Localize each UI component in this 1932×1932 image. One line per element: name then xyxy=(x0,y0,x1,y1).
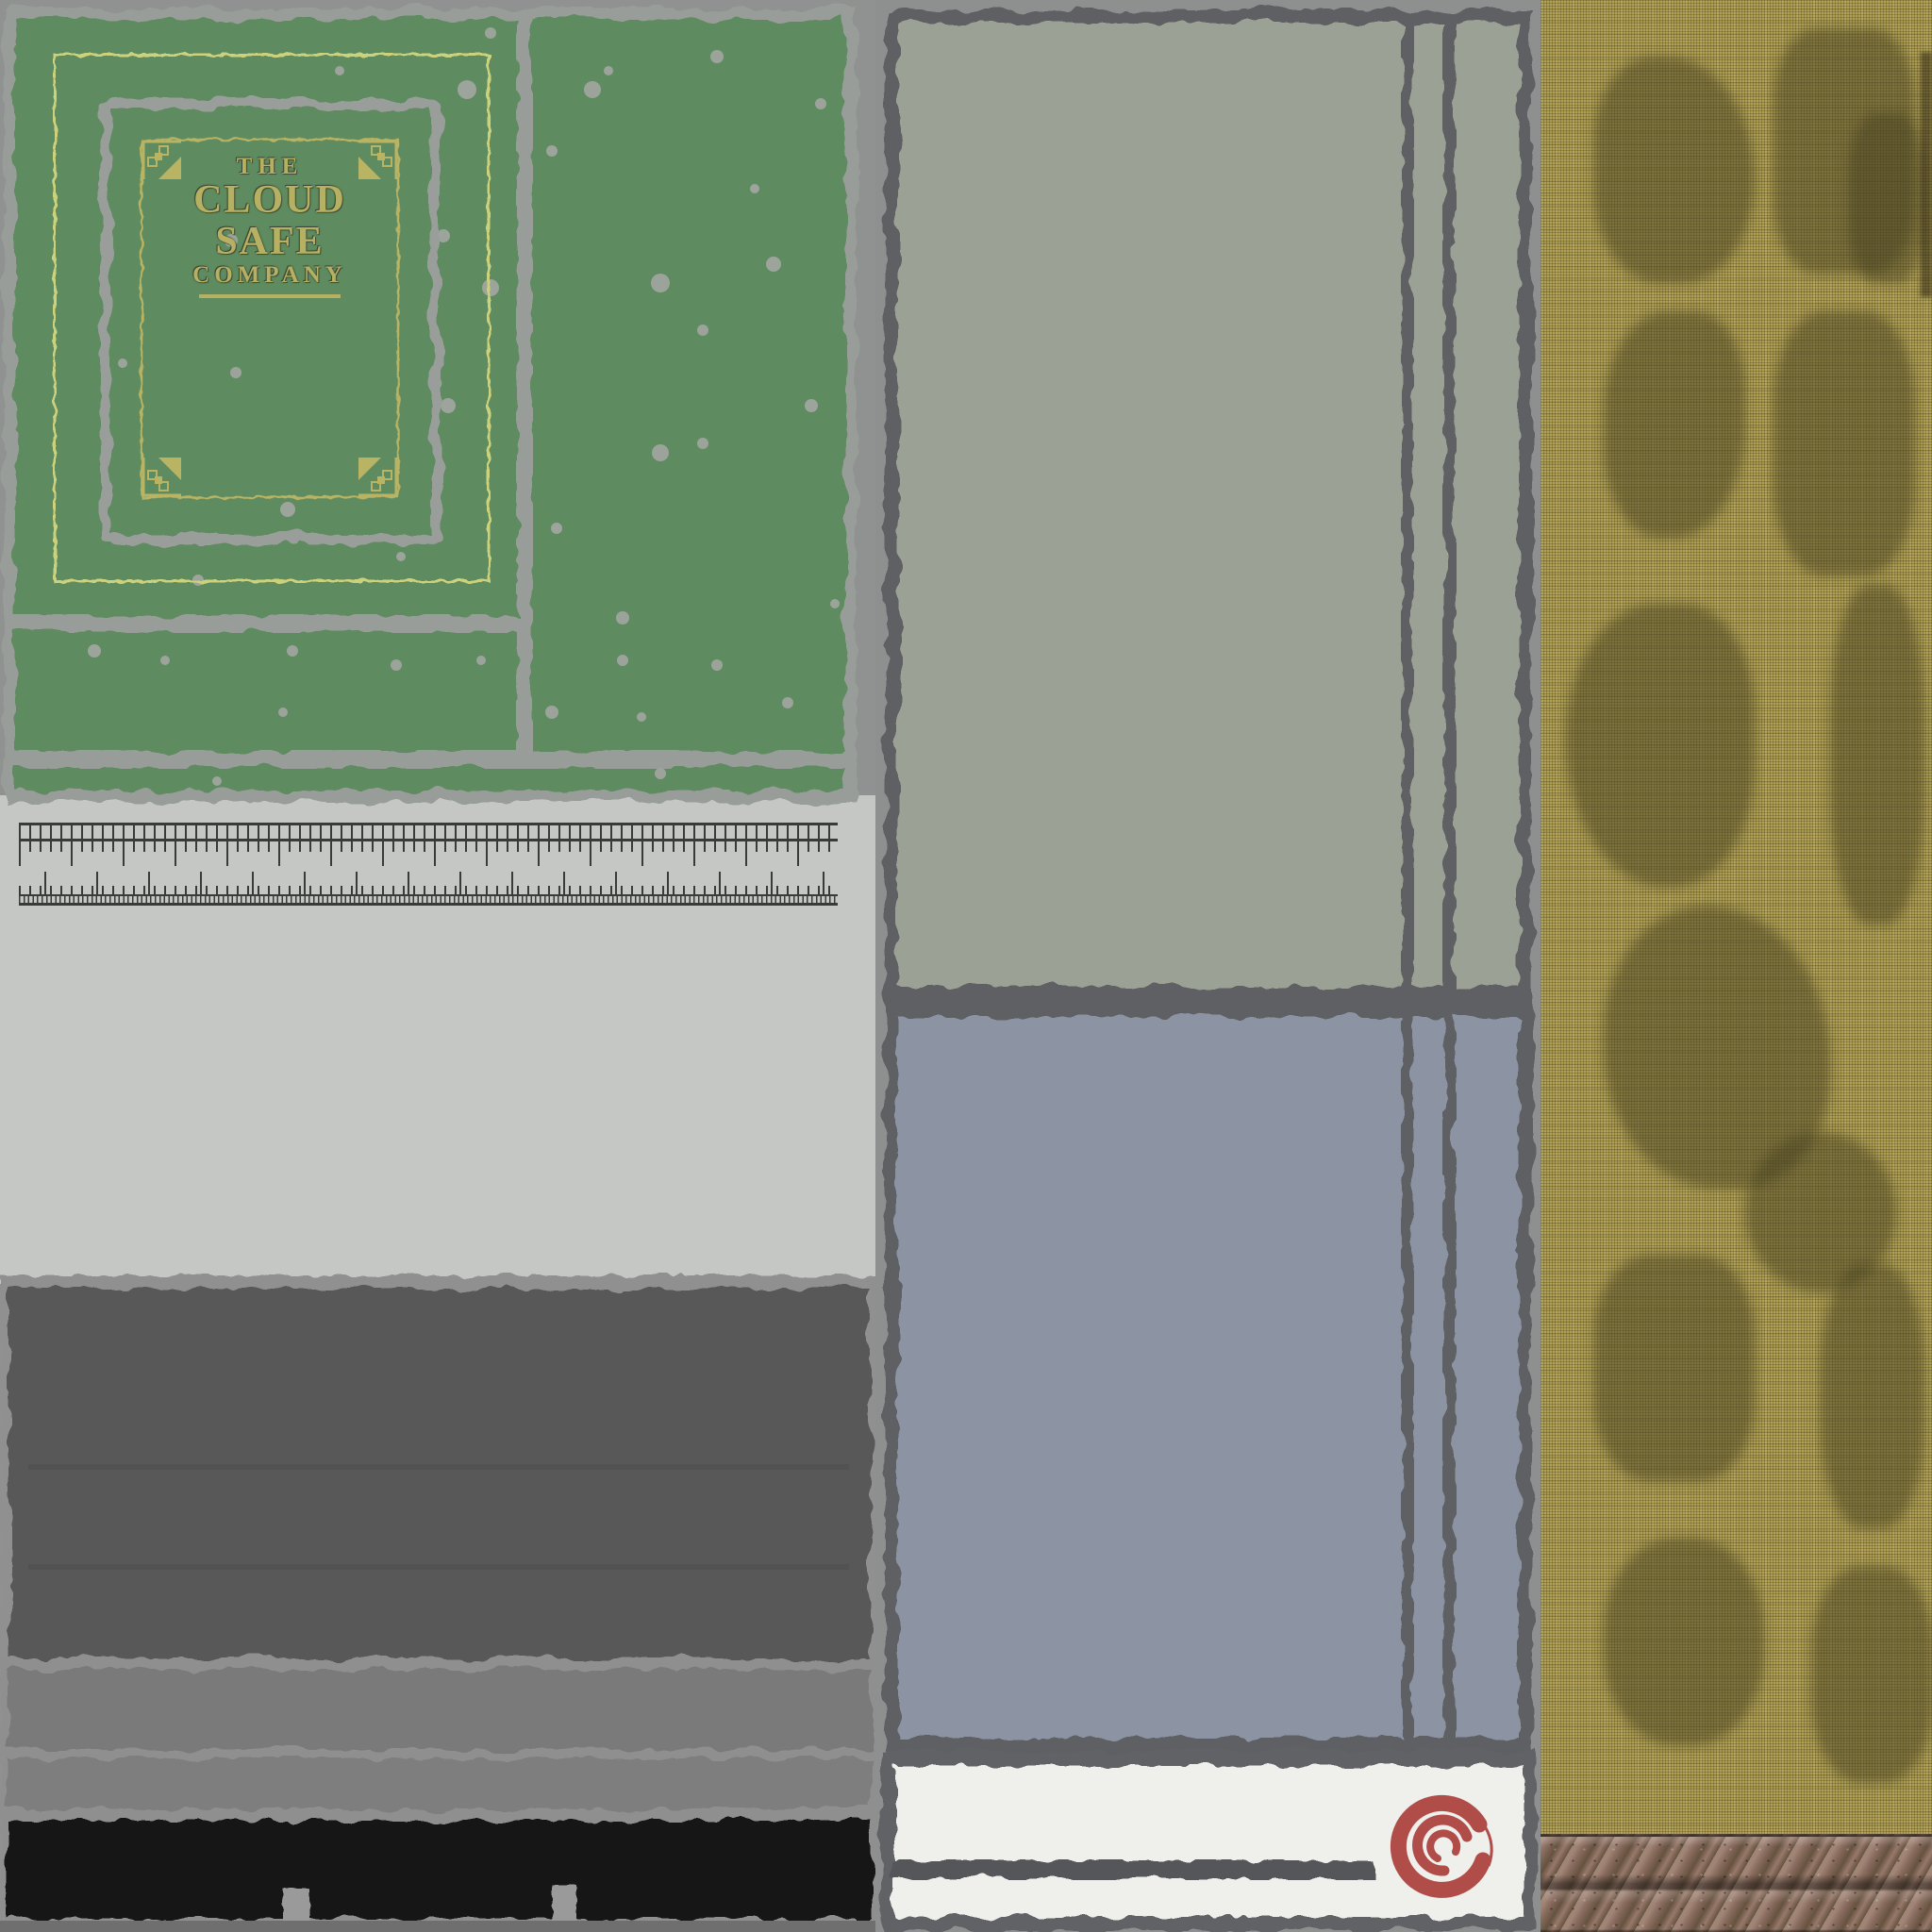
cover-title-underline xyxy=(199,294,341,298)
fabric-stain xyxy=(1849,113,1924,283)
fabric-stain xyxy=(1594,57,1755,283)
fabric-stain xyxy=(1774,311,1915,575)
cover-fold-line-lower xyxy=(9,751,851,768)
fabric-stain xyxy=(1594,1255,1755,1481)
fabric-stain xyxy=(1604,311,1745,538)
fabric-stain xyxy=(1604,1538,1764,1745)
spine-bands xyxy=(0,1275,879,1932)
cover-title-line1: THE xyxy=(142,155,398,179)
cover-title-line2: CLOUD SAFE xyxy=(142,179,398,262)
dark-band xyxy=(9,1289,870,1664)
cover-title-line3: COMPANY xyxy=(142,262,398,289)
mid-band-1 xyxy=(8,1670,872,1751)
paper-panels xyxy=(875,0,1541,1932)
texture-atlas: THE CLOUD SAFE COMPANY xyxy=(0,0,1932,1932)
cover-fold-line-upper xyxy=(9,615,524,632)
fabric-stain xyxy=(1566,604,1755,887)
label-ink-line xyxy=(891,1860,1372,1879)
page-rulers xyxy=(19,823,838,906)
ruler-comb-bottom xyxy=(19,894,838,906)
fabric-panel xyxy=(1541,0,1932,1838)
torn-seam-2 xyxy=(1443,9,1456,1751)
book-cover-panel xyxy=(4,8,857,802)
ruler-rising-ticks xyxy=(19,872,838,894)
slate-panel xyxy=(898,1017,1519,1738)
black-band xyxy=(8,1821,872,1919)
cover-spine-divider xyxy=(517,15,532,764)
fabric-stain xyxy=(1830,585,1924,924)
fabric-stain xyxy=(1821,1264,1924,1528)
ruler-hanging-ticks xyxy=(19,841,838,866)
fabric-stain xyxy=(1811,1566,1932,1783)
torn-seam-1 xyxy=(1402,9,1413,1751)
cover-title: THE CLOUD SAFE COMPANY xyxy=(142,155,398,298)
sage-panel xyxy=(898,23,1519,987)
rope-panel xyxy=(1541,1834,1932,1932)
mid-band-2 xyxy=(8,1758,872,1813)
ruler-comb-top xyxy=(19,823,838,841)
fabric-edge-shadow xyxy=(1921,52,1932,297)
label-strip xyxy=(881,1751,1538,1930)
